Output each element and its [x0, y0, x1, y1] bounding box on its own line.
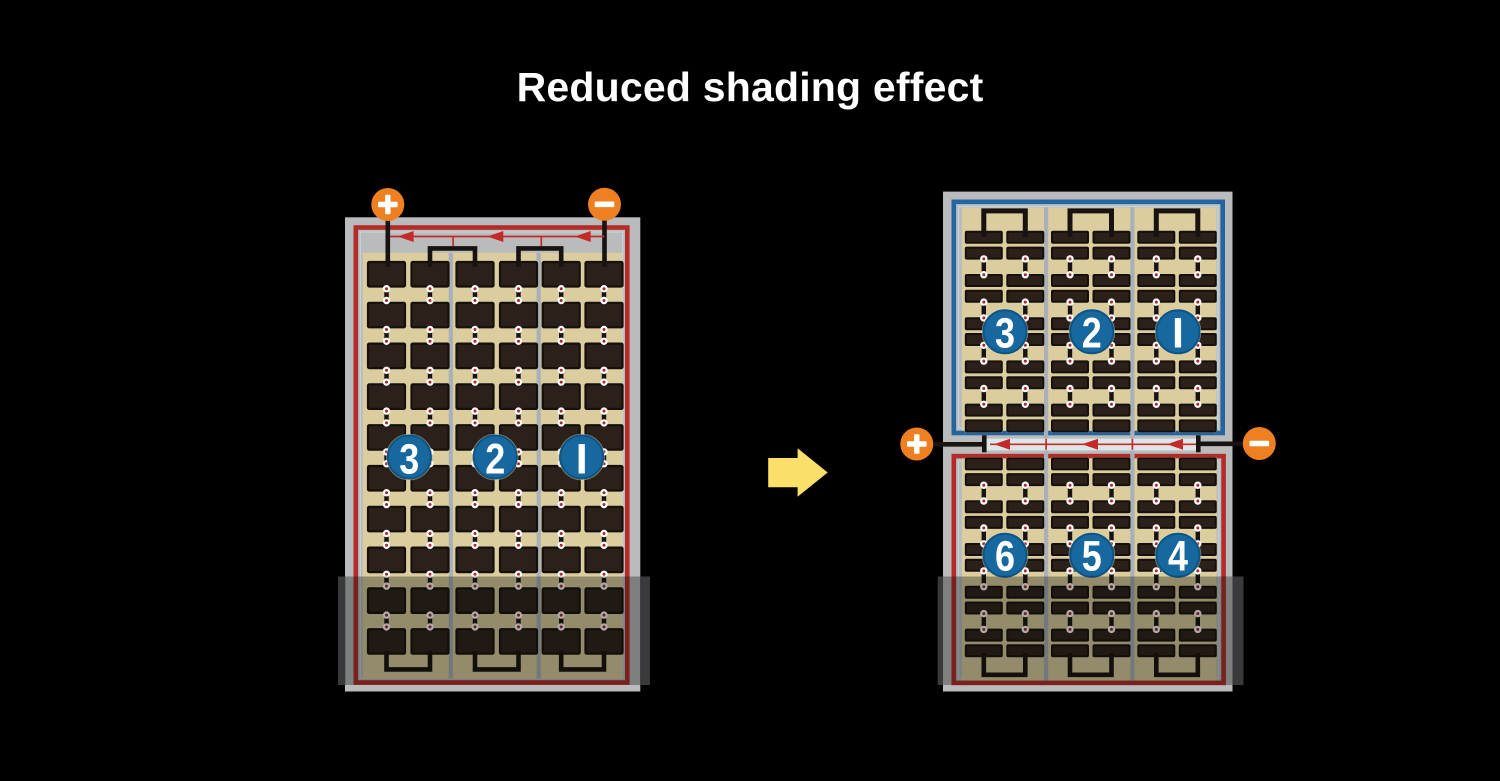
svg-text:3: 3 — [995, 309, 1015, 357]
svg-text:5: 5 — [1082, 533, 1102, 581]
svg-text:3: 3 — [399, 436, 419, 484]
svg-text:I: I — [1172, 309, 1184, 357]
svg-text:I: I — [576, 436, 588, 484]
svg-text:4: 4 — [1168, 533, 1188, 581]
svg-text:2: 2 — [485, 436, 505, 484]
svg-text:6: 6 — [995, 533, 1015, 581]
svg-text:2: 2 — [1082, 309, 1102, 357]
